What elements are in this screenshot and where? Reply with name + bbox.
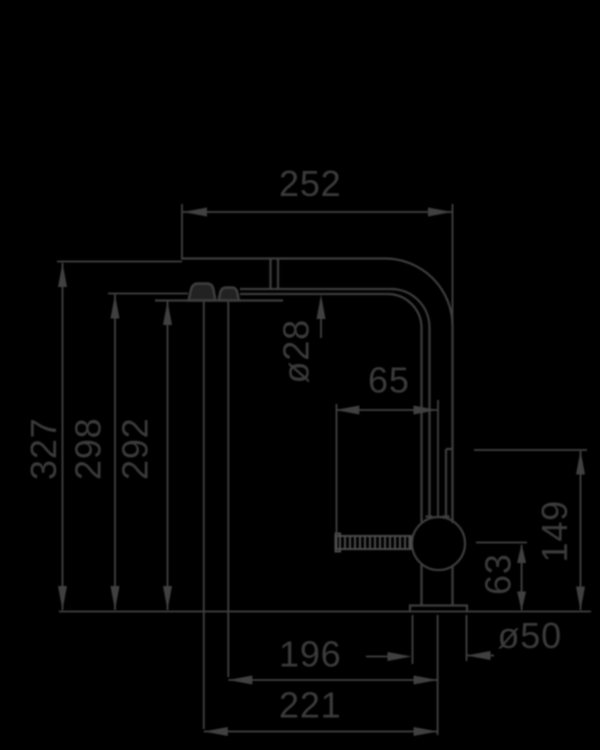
svg-text:63: 63 [478,553,519,595]
svg-text:149: 149 [534,500,575,562]
svg-text:292: 292 [115,418,156,480]
svg-text:196: 196 [279,634,341,675]
svg-text:298: 298 [68,418,109,480]
svg-text:ø28: ø28 [276,319,317,383]
svg-text:252: 252 [279,163,341,204]
svg-text:65: 65 [368,360,410,401]
svg-text:327: 327 [23,418,64,480]
svg-text:ø50: ø50 [498,615,562,656]
svg-text:221: 221 [279,685,341,726]
